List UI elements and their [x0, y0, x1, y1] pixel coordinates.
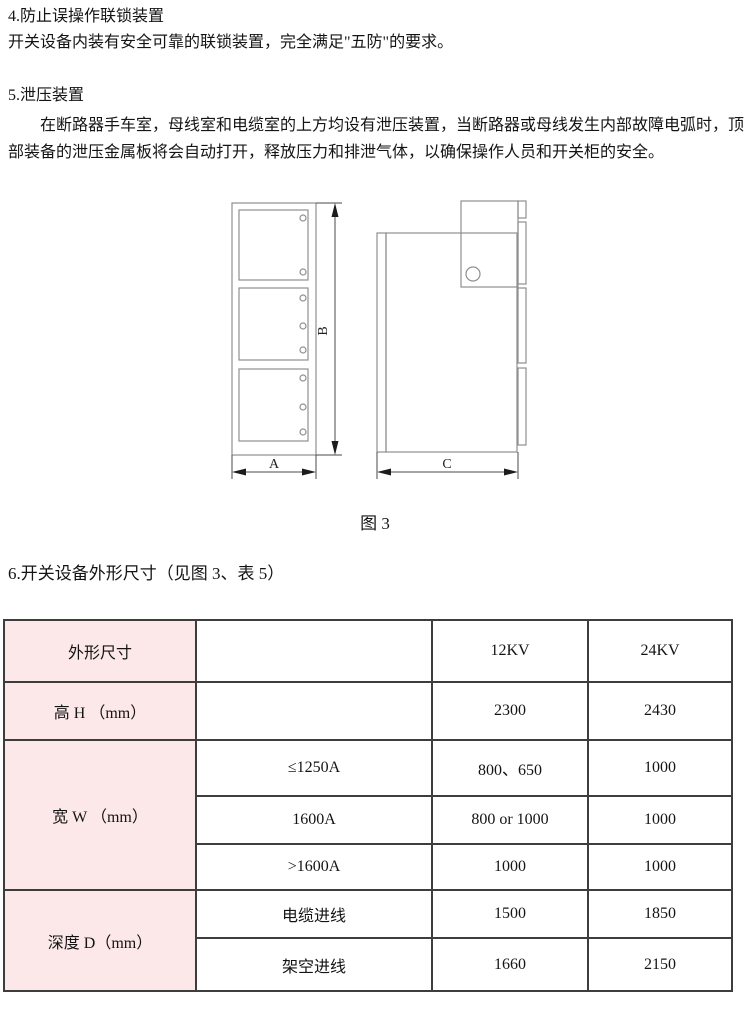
dim-label-a: A [269, 457, 280, 472]
cell-depth-12kv-0: 1500 [432, 890, 588, 938]
table-row: 深度 D（mm） 电缆进线 1500 1850 [4, 890, 732, 938]
section4-body: 开关设备内装有安全可靠的联锁装置，完全满足"五防"的要求。 [8, 33, 453, 52]
cell-corner: 外形尺寸 [4, 620, 196, 682]
table-row: 外形尺寸 12KV 24KV [4, 620, 732, 682]
cell-col-12kv: 12KV [432, 620, 588, 682]
cell-depth-24kv-0: 1850 [588, 890, 732, 938]
dim-label-c: C [442, 457, 451, 472]
cell-width-12kv-0: 800、650 [432, 740, 588, 796]
cell-depth-cond-1: 架空进线 [196, 938, 432, 991]
panel-screw-holes [300, 215, 306, 435]
cell-width-cond-1: 1600A [196, 796, 432, 844]
table-row: 宽 W （mm） ≤1250A 800、650 1000 [4, 740, 732, 796]
cell-height-12kv: 2300 [432, 682, 588, 740]
dimension-a: A [232, 455, 316, 479]
dim-label-b: B [316, 326, 331, 335]
section4-heading: 4.防止误操作联锁装置 [8, 7, 164, 26]
cell-width-cond-2: >1600A [196, 844, 432, 890]
dimension-c: C [377, 452, 518, 479]
cell-width-cond-0: ≤1250A [196, 740, 432, 796]
cell-depth-label: 深度 D（mm） [4, 890, 196, 991]
cell-width-label: 宽 W （mm） [4, 740, 196, 890]
cell-width-12kv-2: 1000 [432, 844, 588, 890]
cell-width-12kv-1: 800 or 1000 [432, 796, 588, 844]
dimension-b: B [316, 203, 342, 455]
cell-width-24kv-0: 1000 [588, 740, 732, 796]
cell-depth-12kv-1: 1660 [432, 938, 588, 991]
figure3-drawing: B A C [200, 193, 550, 488]
cell-width-24kv-1: 1000 [588, 796, 732, 844]
table-row: 高 H （mm） 2300 2430 [4, 682, 732, 740]
cell-blank [196, 620, 432, 682]
cell-col-24kv: 24KV [588, 620, 732, 682]
figure-side-view [377, 201, 526, 452]
dimension-table: 外形尺寸 12KV 24KV 高 H （mm） 2300 2430 宽 W （m… [3, 619, 733, 992]
figure3-caption: 图 3 [0, 509, 750, 534]
section6-heading: 6.开关设备外形尺寸（见图 3、表 5） [8, 564, 284, 583]
cell-height-24kv: 2430 [588, 682, 732, 740]
section5-paragraph: 在断路器手车室，母线室和电缆室的上方均设有泄压装置，当断路器或母线发生内部故障电… [8, 112, 748, 166]
cell-blank [196, 682, 432, 740]
cell-depth-cond-0: 电缆进线 [196, 890, 432, 938]
cell-height-label: 高 H （mm） [4, 682, 196, 740]
cell-width-24kv-2: 1000 [588, 844, 732, 890]
figure-front-view [232, 203, 316, 455]
section5-heading: 5.泄压装置 [8, 86, 84, 105]
document-page: 4.防止误操作联锁装置 开关设备内装有安全可靠的联锁装置，完全满足"五防"的要求… [0, 0, 750, 1021]
cell-depth-24kv-1: 2150 [588, 938, 732, 991]
